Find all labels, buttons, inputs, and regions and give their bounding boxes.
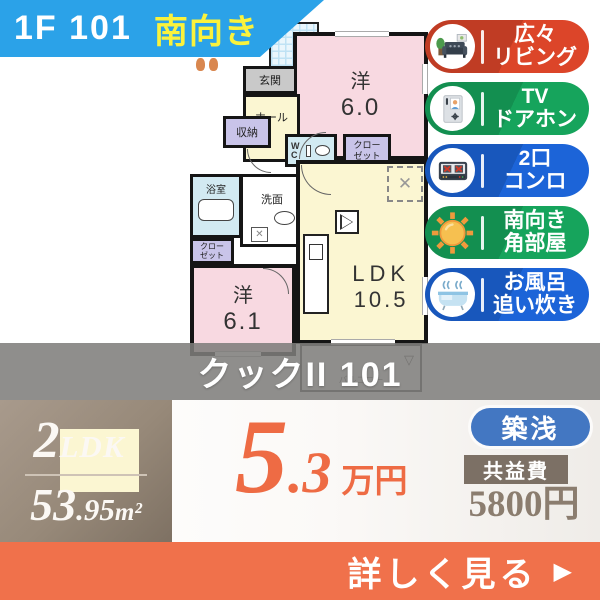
tv-intercom-icon <box>430 86 475 131</box>
badge-separator <box>481 92 484 126</box>
arrow-right-icon: ▶ <box>554 557 572 586</box>
divider <box>25 474 147 476</box>
badge-text: 追い炊き <box>489 295 581 317</box>
badge-separator <box>481 154 484 188</box>
closet-label: ゼット <box>200 251 224 260</box>
bathroom-label: 浴室 <box>206 181 226 196</box>
badge-text: ドアホン <box>489 109 581 131</box>
badge-text: TV <box>489 86 581 108</box>
facing-direction: 南向き <box>154 4 259 53</box>
storage-label: 収納 <box>236 124 258 140</box>
kitchen-sink-shape <box>309 244 323 260</box>
closet-label: クロー <box>353 140 380 150</box>
floor-plan: 洋 6.0 玄関 ホール 収納 WC クロー ゼット 浴室 <box>185 22 431 396</box>
door-swing-arc <box>247 149 271 173</box>
washer-pan-shape: ✕ <box>251 227 268 242</box>
washroom-label: 洗面 <box>261 191 283 207</box>
badge-tv-doorphone: TV ドアホン <box>425 82 589 135</box>
room-closet-lower: クロー ゼット <box>190 238 234 264</box>
shoes-decoration <box>196 58 205 71</box>
common-fee-label: 共益費 <box>464 455 568 484</box>
closet-label: クロー <box>200 242 224 251</box>
badge-text: 広々 <box>489 24 581 46</box>
badge-two-burner-stove: 2口 コンロ <box>425 144 589 197</box>
area-integer: 53 <box>30 479 76 530</box>
badge-text: リビング <box>489 47 581 69</box>
badge-text: 南向き <box>489 210 581 232</box>
layout-number: 2 <box>34 412 60 469</box>
window-gap <box>335 31 389 37</box>
living-room-sofa-icon <box>430 24 475 69</box>
building-name-overlay: クックII 101 <box>0 343 600 400</box>
badge-text: 2口 <box>489 148 581 170</box>
sink-shape <box>274 211 295 225</box>
entrance-label: 玄関 <box>259 72 281 88</box>
badge-spacious-living: 広々 リビング <box>425 20 589 73</box>
badge-south-corner-room: 南向き 角部屋 <box>425 206 589 259</box>
range-hood-symbol <box>335 210 359 234</box>
area-decimal: .95 <box>76 492 115 527</box>
room-bathroom: 浴室 <box>190 174 242 238</box>
fee-label-text: 共益費 <box>483 455 549 484</box>
layout-area-box: 2LDK 53.95m² <box>0 400 172 542</box>
refrigerator-space-symbol: ✕ <box>387 166 423 202</box>
room-entrance: 玄関 <box>243 66 297 94</box>
room-storage: 収納 <box>223 116 271 148</box>
kitchen-counter-shape <box>303 234 329 314</box>
building-name: クックII 101 <box>197 347 402 396</box>
see-details-button[interactable]: 詳しく見る ▶ <box>0 542 600 600</box>
room-size: 6.1 <box>223 308 262 336</box>
bathtub-shape <box>198 199 234 221</box>
two-burner-stove-icon <box>430 148 475 193</box>
badge-separator <box>481 30 484 64</box>
building-age-badge: 築浅 <box>471 408 590 446</box>
room-washroom: 洗面 ✕ <box>240 174 304 247</box>
sun-icon <box>430 210 475 255</box>
badge-separator <box>481 216 484 250</box>
room-label: 洋 <box>223 285 262 308</box>
listing-card: 洋 6.0 玄関 ホール 収納 WC クロー ゼット 浴室 <box>0 0 600 600</box>
ldk-label: LDK <box>352 261 410 286</box>
layout-type: 2LDK <box>34 415 139 467</box>
rent-price: 5.3万円 <box>235 404 408 510</box>
feature-badges: 広々 リビング TV ドアホン <box>425 20 589 330</box>
badge-bath-reheating: お風呂 追い炊き <box>425 268 589 321</box>
common-fee-value: 5800円 <box>452 486 596 523</box>
ldk-size: 10.5 <box>352 287 410 312</box>
rent-integer: 5 <box>235 404 288 510</box>
room-size: 6.0 <box>341 94 380 122</box>
badge-text: お風呂 <box>489 272 581 294</box>
shoes-decoration <box>209 58 218 71</box>
age-badge-text: 築浅 <box>501 409 559 446</box>
badge-text: コンロ <box>489 171 581 193</box>
rent-decimal: .3 <box>288 444 332 502</box>
room-label: 洋 <box>341 71 380 94</box>
rent-unit: 万円 <box>342 464 408 497</box>
area-unit: m² <box>115 499 142 526</box>
unit-number: 1F 101 <box>14 9 132 48</box>
badge-text: 角部屋 <box>489 233 581 255</box>
cta-label: 詳しく見る <box>348 547 538 596</box>
bathtub-icon <box>430 272 475 317</box>
badge-separator <box>481 278 484 312</box>
floor-area: 53.95m² <box>30 482 142 528</box>
